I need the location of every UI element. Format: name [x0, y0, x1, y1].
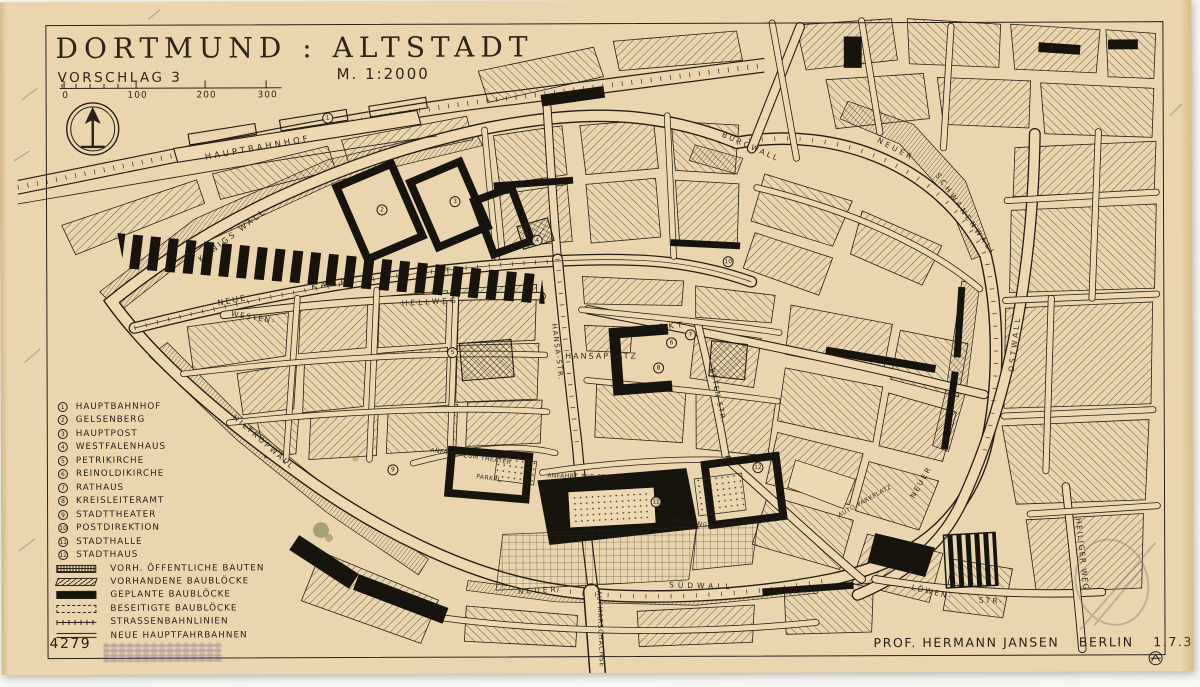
- legend-item: 3 HAUPTPOST: [58, 427, 166, 441]
- scale-subticks: [62, 84, 132, 89]
- legend-item: 8 KREISLEITERAMT: [58, 494, 166, 508]
- attribution: PROF. HERMANN JANSEN BERLIN 1.7.39: [874, 634, 1194, 650]
- sheet-number: 4279: [50, 636, 92, 652]
- legend-label: KREISLEITERAMT: [76, 496, 164, 506]
- legend-label: POSTDIREKTION: [76, 523, 160, 533]
- legend-item: 10 POSTDIREKTION: [58, 521, 166, 535]
- symbol-legend-label: VORHANDENE BAUBLÖCKE: [110, 576, 249, 586]
- symbol-legend-label: BESEITIGTE BAUBLÖCKE: [110, 603, 237, 613]
- legend-item: 6 REINOLDIKIRCHE: [58, 467, 166, 481]
- legend-item: 1 HAUPTBAHNHOF: [58, 400, 166, 414]
- scale-tick-mark: [136, 81, 137, 89]
- legend-label: RATHAUS: [76, 483, 124, 493]
- legend-number-badge: 12: [58, 550, 68, 560]
- symbol-legend-label: STRASSENBAHNLINIEN: [110, 617, 228, 627]
- legend-swatch-icon: [56, 591, 96, 599]
- scale-tick-label: 300: [258, 90, 278, 100]
- symbol-legend-label: NEUE HAUPTFAHRBAHNEN: [110, 630, 247, 640]
- legend-number-badge: 5: [58, 456, 68, 466]
- symbol-legend-label: GEPLANTE BAUBLÖCKE: [110, 590, 231, 600]
- legend-label: HAUPTPOST: [76, 429, 138, 439]
- artist-monogram-icon: [1148, 650, 1164, 666]
- scan-backdrop: DORTMUND : ALTSTADT VORSCHLAG 3 M. 1:200…: [0, 0, 1200, 687]
- legend-number-badge: 8: [58, 496, 68, 506]
- legend-item: 5 PETRIKIRCHE: [58, 454, 166, 468]
- legend-item: 2 GELSENBERG: [58, 413, 166, 427]
- archive-stamp: [104, 642, 222, 661]
- legend-label: REINOLDIKIRCHE: [76, 469, 164, 479]
- scale-note: M. 1:2000: [337, 65, 430, 83]
- legend-label: STADTTHEATER: [76, 509, 156, 519]
- legend-number-badge: 3: [58, 429, 68, 439]
- symbol-legend: VORH. ÖFFENTLICHE BAUTEN VORHANDENE BAUB…: [56, 561, 264, 642]
- symbol-legend-label: VORH. ÖFFENTLICHE BAUTEN: [110, 563, 264, 574]
- attribution-date: 1.7.39: [1153, 634, 1193, 649]
- legend-number-badge: 11: [58, 537, 68, 547]
- legend-item: 4 WESTFALENHAUS: [58, 440, 166, 454]
- legend-swatch-icon: [56, 565, 96, 573]
- legend-label: WESTFALENHAUS: [76, 442, 166, 452]
- legend-swatch-icon: [56, 619, 96, 626]
- attribution-author: PROF. HERMANN JANSEN: [874, 635, 1060, 651]
- symbol-legend-item: STRASSENBAHNLINIEN: [56, 615, 264, 629]
- legend-label: PETRIKIRCHE: [76, 455, 144, 465]
- legend-swatch-icon: [56, 605, 96, 613]
- scale-tick-mark: [205, 81, 206, 89]
- legend-number-badge: 7: [58, 483, 68, 493]
- page-title: DORTMUND : ALTSTADT: [55, 30, 533, 65]
- legend-label: HAUPTBAHNHOF: [76, 401, 162, 411]
- legend-label: STADTHALLE: [76, 537, 142, 547]
- symbol-legend-item: VORH. ÖFFENTLICHE BAUTEN: [56, 561, 264, 575]
- legend-item: 11 STADTHALLE: [58, 535, 166, 549]
- legend-item: 9 STADTTHEATER: [58, 508, 166, 522]
- numbered-legend: 1 HAUPTBAHNHOF 2 GELSENBERG 3 HAUPTPOST …: [58, 400, 167, 562]
- legend-label: STADTHAUS: [76, 550, 138, 560]
- north-arrow-compass: [64, 100, 122, 158]
- scale-tick-label: 100: [128, 91, 148, 101]
- legend-label: GELSENBERG: [76, 415, 146, 425]
- legend-number-badge: 4: [58, 442, 68, 452]
- attribution-place: BERLIN: [1079, 634, 1134, 649]
- symbol-legend-item: BESEITIGTE BAUBLÖCKE: [56, 601, 264, 615]
- legend-number-badge: 2: [58, 415, 68, 425]
- legend-number-badge: 9: [58, 510, 68, 520]
- scale-tick-label: 200: [197, 90, 217, 100]
- legend-item: 7 RATHAUS: [58, 481, 166, 495]
- legend-swatch-icon: [55, 578, 98, 586]
- scale-tick-mark: [266, 80, 267, 88]
- legend-number-badge: 10: [58, 523, 68, 533]
- map-sheet: DORTMUND : ALTSTADT VORSCHLAG 3 M. 1:200…: [0, 0, 1194, 675]
- symbol-legend-item: VORHANDENE BAUBLÖCKE: [56, 575, 264, 589]
- legend-number-badge: 6: [58, 469, 68, 479]
- legend-item: 12 STADTHAUS: [58, 548, 166, 562]
- symbol-legend-item: GEPLANTE BAUBLÖCKE: [56, 588, 264, 602]
- legend-number-badge: 1: [58, 402, 68, 412]
